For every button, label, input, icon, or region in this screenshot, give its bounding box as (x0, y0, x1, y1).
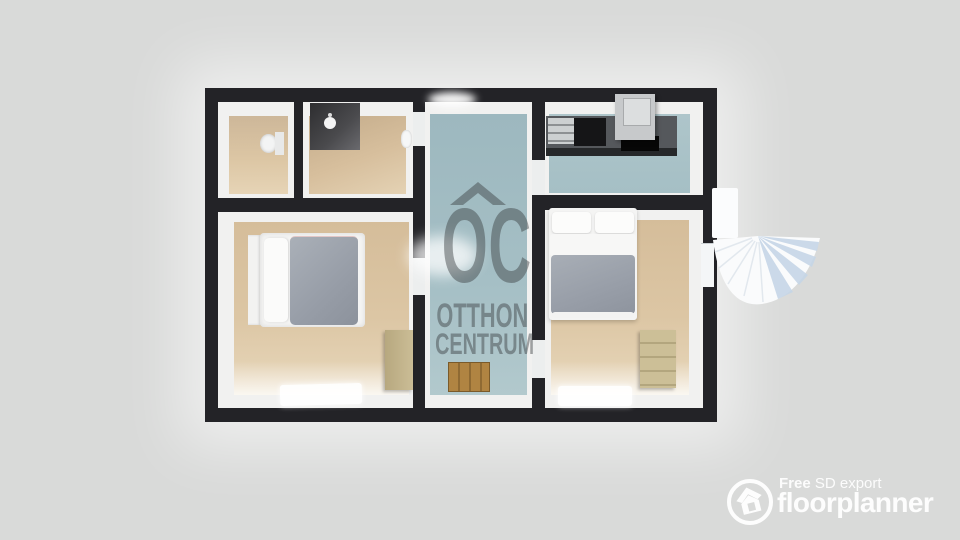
bed-sheet (550, 234, 636, 256)
bed-pillow (595, 212, 634, 233)
wooden-crate (448, 362, 490, 392)
bed-right (549, 208, 637, 320)
door-opening-bedroom-right (532, 340, 545, 378)
ceiling-light-glow (428, 92, 476, 107)
bed-pillow (552, 212, 591, 233)
bed-left (248, 233, 365, 327)
shower-enclosure (310, 103, 360, 150)
rug-left-bedroom (280, 383, 363, 406)
bed-pillow (264, 238, 288, 322)
floor-light-spot (408, 236, 478, 276)
toilet-tank (275, 132, 284, 155)
dresser-right-bedroom (640, 330, 676, 388)
kitchen-cooktop (574, 118, 606, 146)
bed-duvet (551, 255, 635, 314)
floorplan-render: OC OTTHON CENTRUM Free (0, 0, 960, 540)
door-opening-kitchen (532, 160, 545, 195)
kitchen-fridge (615, 94, 655, 140)
shower-head-icon (324, 117, 336, 129)
kitchen-drawers (548, 118, 574, 144)
floorplanner-logo-icon (725, 477, 775, 527)
floorplan: OC OTTHON CENTRUM (205, 88, 717, 422)
door-opening-bathroom (413, 112, 425, 146)
floorplanner-wordmark: floorplanner (777, 487, 933, 519)
fridge-top-box (623, 98, 651, 126)
bathroom-sink (401, 130, 412, 148)
dresser-left-bedroom (385, 330, 413, 390)
spiral-staircase (700, 180, 870, 320)
bed-duvet (290, 236, 358, 325)
bed-foot-edge (552, 312, 634, 318)
rug-right-bedroom (558, 386, 632, 406)
